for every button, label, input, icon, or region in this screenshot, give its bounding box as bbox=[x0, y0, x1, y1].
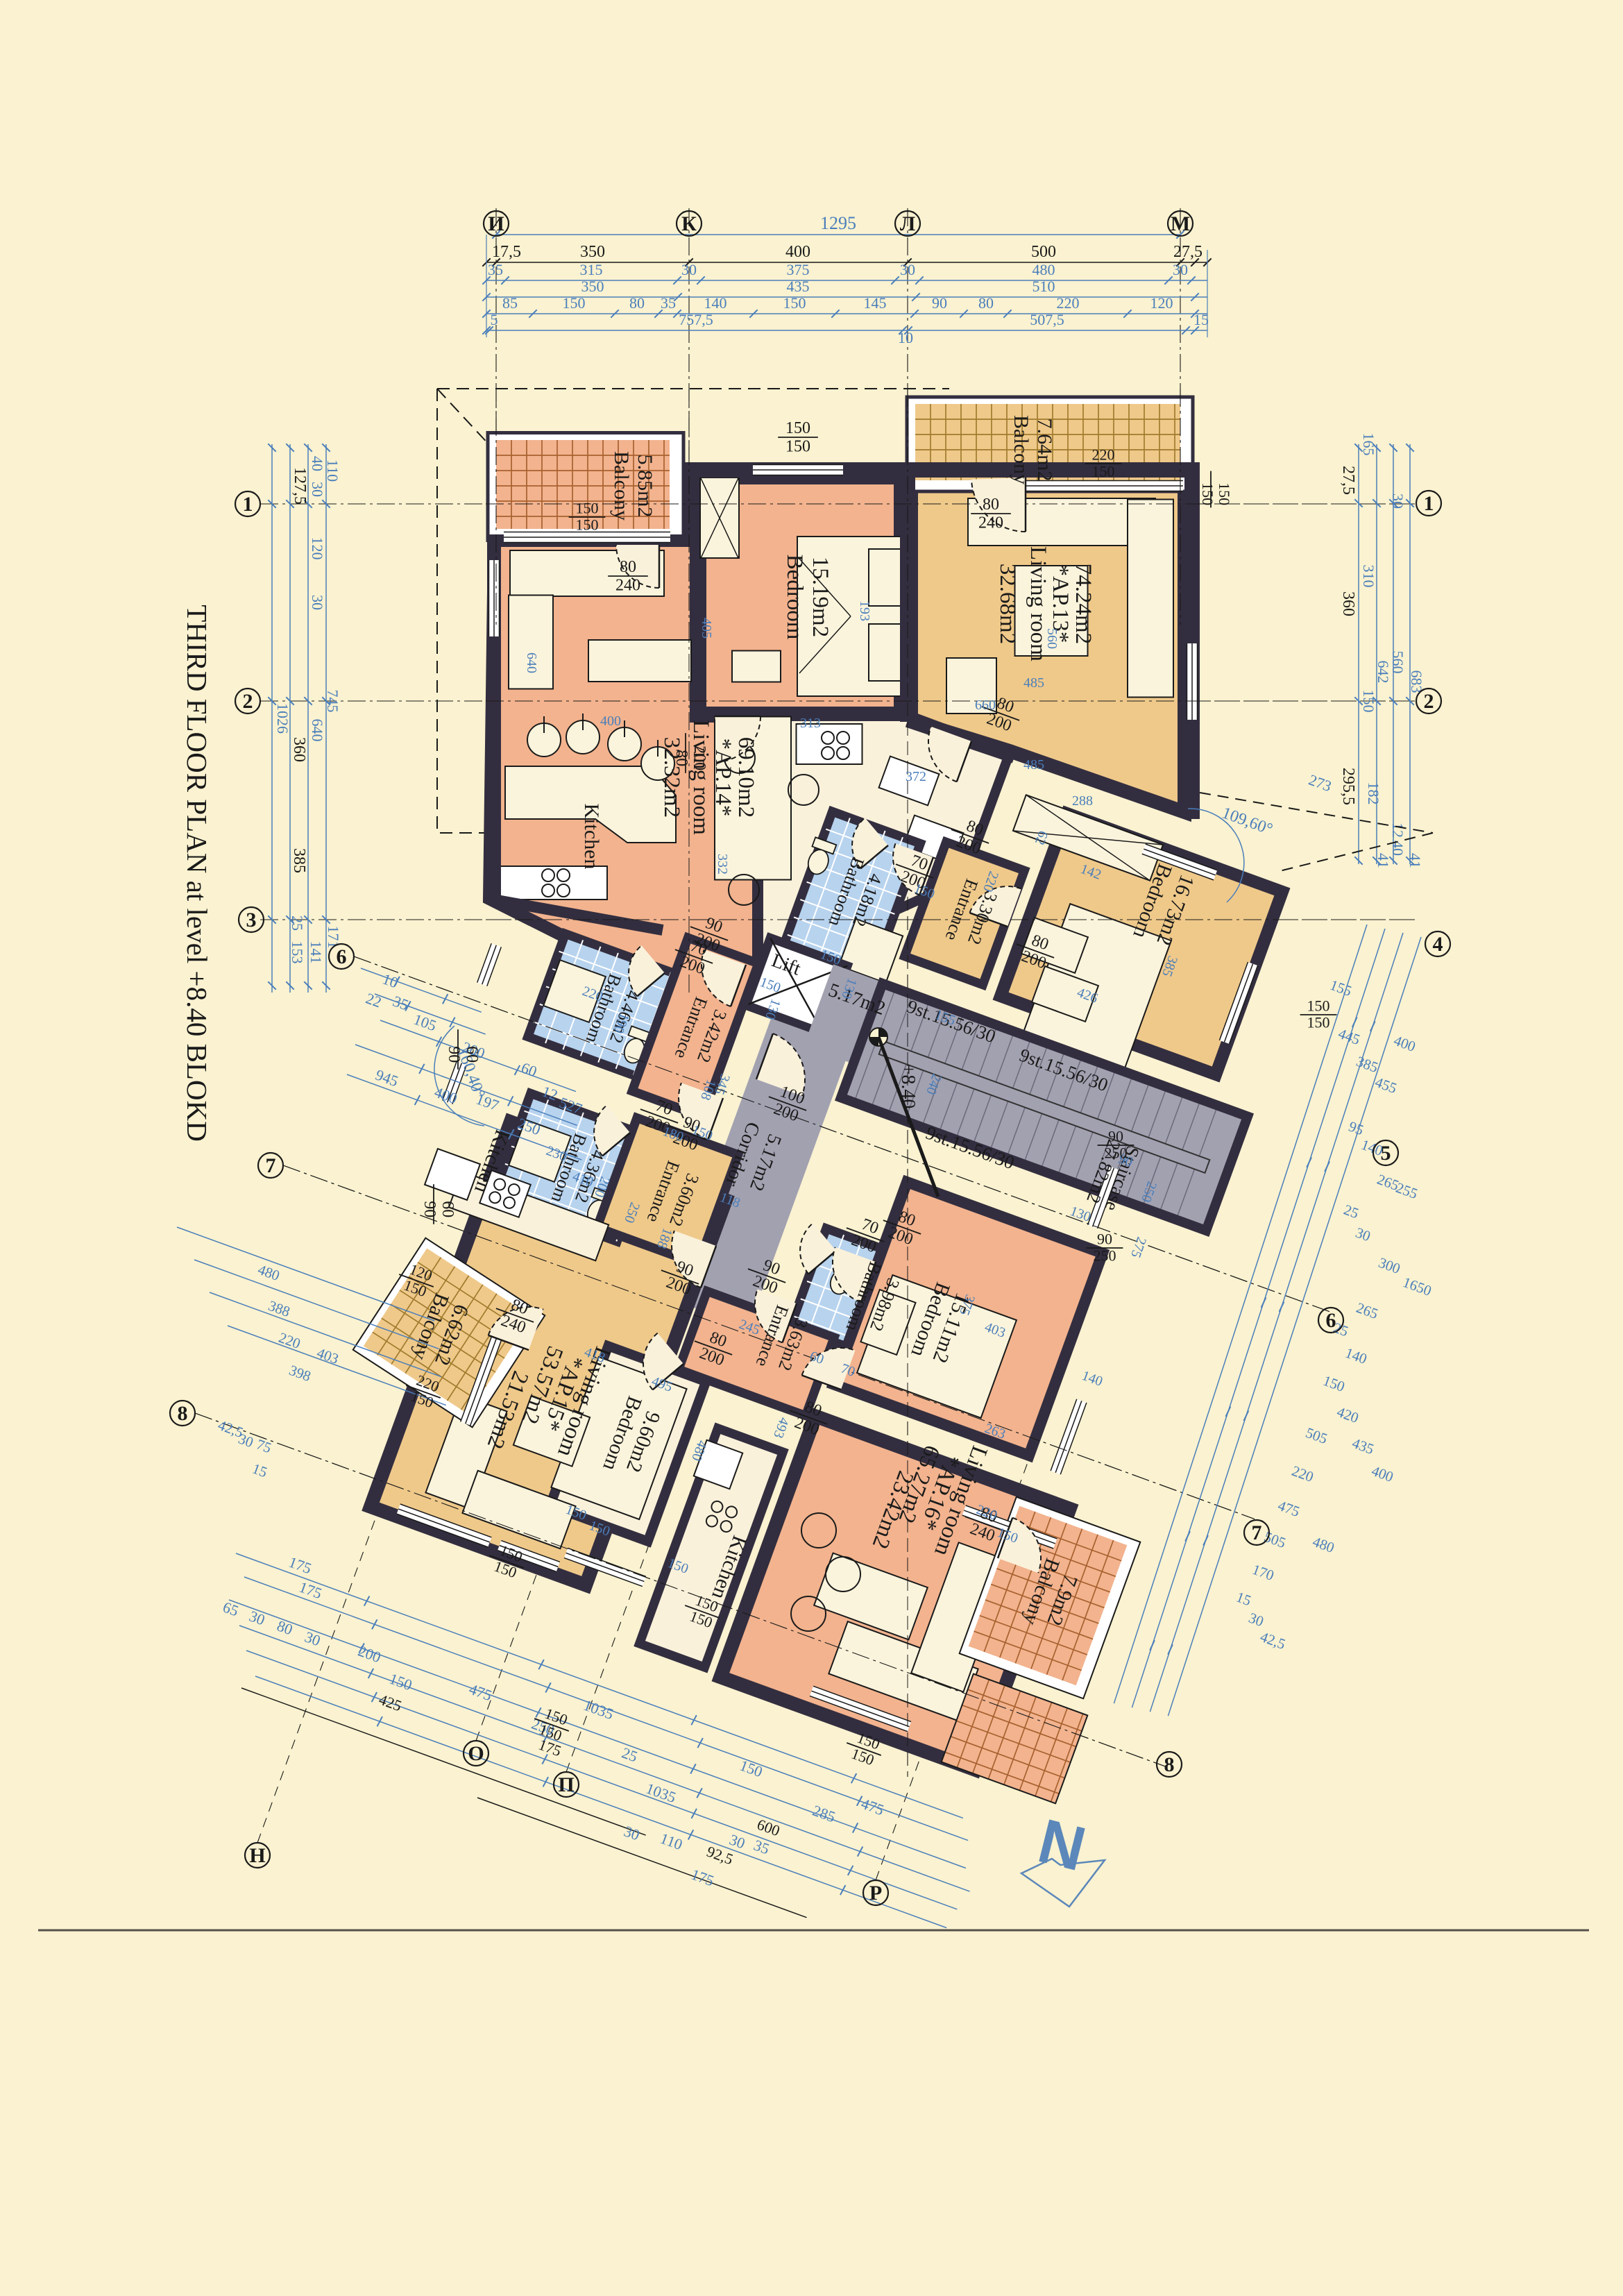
svg-text:80: 80 bbox=[983, 496, 999, 514]
svg-text:332: 332 bbox=[715, 854, 730, 875]
svg-text:150: 150 bbox=[1199, 482, 1216, 505]
svg-text:560: 560 bbox=[1044, 628, 1060, 649]
svg-text:17,5: 17,5 bbox=[492, 243, 521, 261]
svg-text:30: 30 bbox=[1389, 493, 1407, 509]
svg-text:745: 745 bbox=[324, 690, 341, 713]
svg-text:240: 240 bbox=[615, 576, 640, 594]
svg-text:385: 385 bbox=[290, 848, 308, 873]
svg-text:1026: 1026 bbox=[274, 703, 291, 734]
svg-text:757,5: 757,5 bbox=[679, 311, 713, 328]
svg-text:27,5: 27,5 bbox=[1173, 243, 1203, 261]
svg-text:150: 150 bbox=[1307, 997, 1330, 1015]
svg-text:150: 150 bbox=[1360, 690, 1377, 713]
svg-text:О: О bbox=[468, 1742, 484, 1765]
svg-text:405: 405 bbox=[699, 618, 714, 639]
svg-text:350: 350 bbox=[581, 278, 604, 295]
svg-text:25: 25 bbox=[289, 915, 306, 931]
svg-text:640: 640 bbox=[309, 719, 326, 742]
svg-text:5: 5 bbox=[491, 311, 498, 328]
svg-text:7: 7 bbox=[1252, 1521, 1262, 1544]
svg-text:295,5: 295,5 bbox=[1339, 768, 1357, 805]
svg-text:375: 375 bbox=[787, 261, 810, 278]
svg-text:М: М bbox=[1171, 212, 1190, 235]
svg-text:310: 310 bbox=[1360, 565, 1377, 588]
svg-text:110: 110 bbox=[324, 459, 341, 482]
svg-text:К: К bbox=[681, 212, 697, 235]
svg-text:2: 2 bbox=[243, 690, 253, 713]
svg-text:182: 182 bbox=[1365, 782, 1382, 805]
svg-text:Kitchen: Kitchen bbox=[580, 804, 603, 870]
svg-text:150: 150 bbox=[1216, 482, 1233, 505]
svg-text:41: 41 bbox=[1407, 853, 1424, 868]
svg-text:10: 10 bbox=[898, 329, 913, 346]
svg-text:90: 90 bbox=[932, 294, 947, 312]
svg-text:Н: Н bbox=[249, 1844, 265, 1867]
svg-text:360: 360 bbox=[290, 737, 308, 762]
svg-text:74.24m2: 74.24m2 bbox=[1071, 564, 1096, 644]
svg-text:60: 60 bbox=[463, 1046, 481, 1063]
svg-text:Р: Р bbox=[869, 1882, 882, 1905]
svg-text:510: 510 bbox=[1033, 278, 1055, 295]
svg-text:140: 140 bbox=[704, 294, 727, 312]
svg-text:435: 435 bbox=[787, 278, 810, 295]
svg-text:150: 150 bbox=[576, 516, 599, 534]
svg-text:41: 41 bbox=[1375, 853, 1392, 868]
svg-text:1295: 1295 bbox=[820, 213, 856, 233]
svg-text:Balcony: Balcony bbox=[610, 451, 633, 521]
svg-text:350: 350 bbox=[580, 243, 605, 261]
svg-text:145: 145 bbox=[864, 294, 887, 312]
svg-text:127,5: 127,5 bbox=[291, 467, 309, 505]
svg-text:250: 250 bbox=[1105, 1145, 1128, 1162]
svg-text:250: 250 bbox=[1094, 1247, 1116, 1265]
svg-text:90: 90 bbox=[445, 1046, 463, 1063]
svg-text:90: 90 bbox=[420, 1201, 439, 1217]
svg-text:15: 15 bbox=[1193, 311, 1209, 328]
svg-text:150: 150 bbox=[1092, 463, 1115, 480]
svg-text:165: 165 bbox=[1360, 433, 1377, 456]
svg-text:7: 7 bbox=[266, 1154, 276, 1177]
svg-text:288: 288 bbox=[1072, 793, 1093, 809]
svg-text:1: 1 bbox=[243, 493, 253, 516]
svg-text:+8.40: +8.40 bbox=[897, 1064, 919, 1109]
svg-text:30: 30 bbox=[1173, 261, 1188, 278]
svg-text:90: 90 bbox=[1108, 1128, 1123, 1145]
svg-text:400: 400 bbox=[785, 243, 810, 261]
svg-text:120: 120 bbox=[309, 537, 326, 560]
svg-text:360: 360 bbox=[1339, 591, 1357, 616]
svg-text:642: 642 bbox=[1375, 661, 1392, 684]
svg-text:485: 485 bbox=[1023, 757, 1044, 773]
svg-text:315: 315 bbox=[580, 261, 603, 278]
svg-text:Bedroom: Bedroom bbox=[782, 555, 807, 640]
svg-text:*AP.14*: *AP.14* bbox=[711, 738, 736, 817]
svg-text:40: 40 bbox=[309, 456, 326, 471]
svg-text:5.85m2: 5.85m2 bbox=[634, 455, 656, 518]
svg-text:6: 6 bbox=[1326, 1309, 1336, 1332]
svg-text:И: И bbox=[488, 212, 504, 235]
svg-text:313: 313 bbox=[800, 716, 821, 731]
svg-text:150: 150 bbox=[563, 294, 586, 312]
svg-text:30: 30 bbox=[309, 482, 326, 497]
svg-text:141: 141 bbox=[307, 941, 325, 964]
svg-text:Л: Л bbox=[900, 212, 915, 235]
svg-text:8: 8 bbox=[178, 1402, 188, 1425]
svg-text:220: 220 bbox=[1092, 446, 1115, 464]
svg-text:80: 80 bbox=[978, 294, 994, 312]
svg-text:3: 3 bbox=[246, 909, 257, 931]
svg-text:30: 30 bbox=[900, 261, 915, 278]
svg-text:15.19m2: 15.19m2 bbox=[808, 557, 833, 637]
svg-text:150: 150 bbox=[576, 500, 599, 517]
svg-text:85: 85 bbox=[502, 294, 518, 312]
svg-text:400: 400 bbox=[600, 714, 621, 729]
svg-text:4: 4 bbox=[1433, 933, 1443, 956]
svg-text:485: 485 bbox=[1023, 675, 1044, 691]
svg-text:80: 80 bbox=[620, 558, 636, 576]
svg-text:30: 30 bbox=[309, 595, 326, 610]
svg-text:150: 150 bbox=[785, 437, 810, 455]
svg-text:Balcony: Balcony bbox=[1010, 415, 1033, 484]
svg-text:П: П bbox=[558, 1773, 574, 1796]
svg-text:30: 30 bbox=[681, 261, 697, 278]
svg-text:2: 2 bbox=[1424, 690, 1434, 713]
svg-text:507,5: 507,5 bbox=[1030, 311, 1064, 328]
svg-text:32.68m2: 32.68m2 bbox=[995, 564, 1020, 644]
svg-text:32.32m2: 32.32m2 bbox=[659, 737, 684, 818]
svg-text:60: 60 bbox=[439, 1201, 457, 1217]
svg-text:640: 640 bbox=[524, 652, 539, 673]
svg-text:7.64m2: 7.64m2 bbox=[1033, 419, 1056, 482]
svg-text:12: 12 bbox=[1389, 822, 1407, 838]
svg-text:8: 8 bbox=[1164, 1753, 1175, 1776]
svg-text:6: 6 bbox=[337, 945, 347, 968]
svg-text:660: 660 bbox=[975, 698, 996, 713]
svg-text:69.10m2: 69.10m2 bbox=[733, 737, 758, 818]
svg-text:35: 35 bbox=[488, 261, 503, 278]
svg-text:90: 90 bbox=[1097, 1231, 1112, 1248]
svg-text:80: 80 bbox=[629, 294, 645, 312]
svg-text:153: 153 bbox=[289, 941, 306, 964]
svg-text:5: 5 bbox=[1381, 1142, 1391, 1165]
svg-text:220: 220 bbox=[1057, 294, 1080, 312]
svg-text:120: 120 bbox=[1150, 294, 1173, 312]
svg-text:THIRD FLOOR PLAN at level +8.4: THIRD FLOOR PLAN at level +8.40 BLOKD bbox=[181, 605, 213, 1142]
svg-text:35: 35 bbox=[661, 294, 676, 312]
svg-text:150: 150 bbox=[785, 419, 810, 437]
svg-text:150: 150 bbox=[1307, 1014, 1330, 1031]
svg-text:Living room: Living room bbox=[688, 720, 713, 835]
svg-text:193: 193 bbox=[857, 600, 872, 621]
svg-text:1: 1 bbox=[1424, 492, 1434, 515]
svg-text:150: 150 bbox=[783, 294, 806, 312]
svg-text:27,5: 27,5 bbox=[1339, 466, 1357, 495]
svg-text:500: 500 bbox=[1031, 243, 1056, 261]
svg-text:480: 480 bbox=[1033, 261, 1055, 278]
svg-text:240: 240 bbox=[978, 514, 1003, 532]
svg-text:372: 372 bbox=[906, 769, 926, 784]
